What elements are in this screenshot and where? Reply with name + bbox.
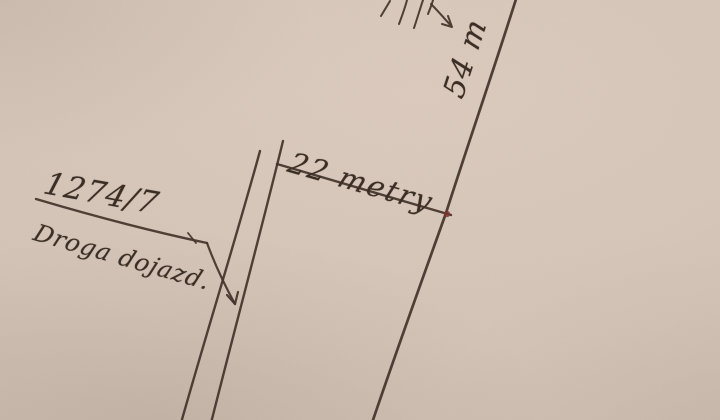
- junction-dot: [444, 211, 450, 217]
- paper-sheet: 1274/7 Droga dojazd. 22 metry 54 m: [0, 0, 720, 420]
